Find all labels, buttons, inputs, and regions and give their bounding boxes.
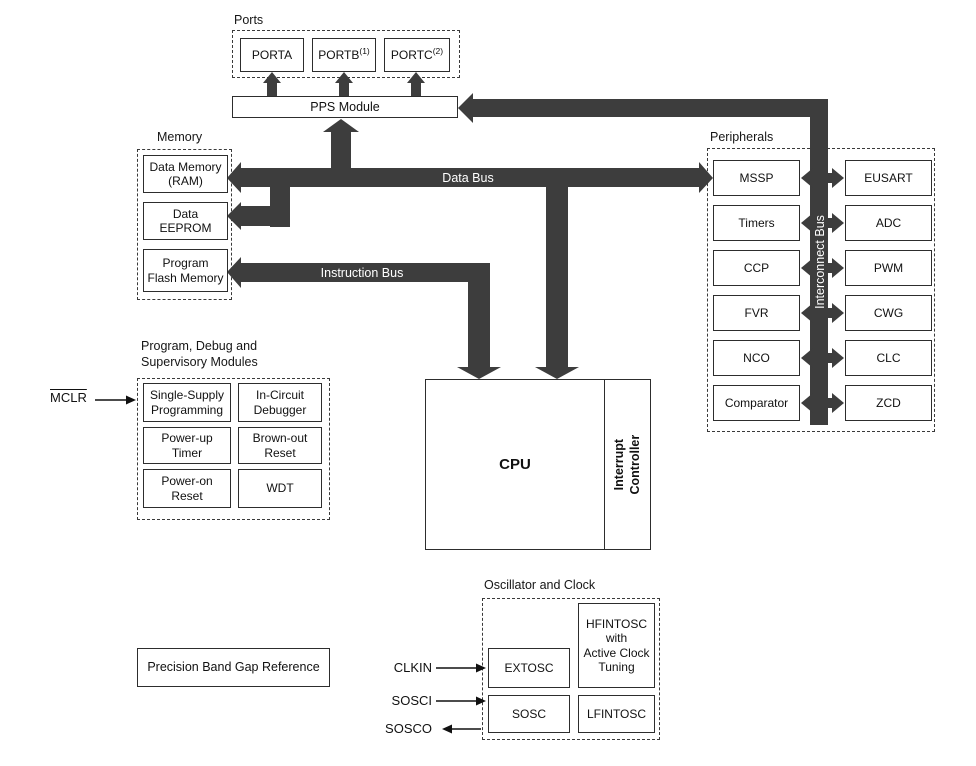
block-power-on-reset: Power-on Reset bbox=[143, 469, 231, 508]
clkin-pin-label: CLKIN bbox=[378, 660, 432, 675]
pps-to-porta-arrow bbox=[263, 72, 281, 97]
data-bus-to-eeprom-branch bbox=[227, 186, 290, 230]
block-power-up-timer: Power-up Timer bbox=[143, 427, 231, 464]
portc-label: PORTC bbox=[391, 48, 433, 62]
porta-label: PORTA bbox=[252, 48, 292, 62]
data-bus-label: Data Bus bbox=[442, 171, 493, 185]
ports-group-label: Ports bbox=[234, 13, 263, 29]
block-porta: PORTA bbox=[240, 38, 304, 72]
interconnect-bus-label: Interconnect Bus bbox=[813, 215, 827, 309]
data-bus-to-pps-branch bbox=[323, 119, 359, 169]
block-sosc: SOSC bbox=[488, 695, 570, 733]
memory-group-label: Memory bbox=[157, 130, 202, 146]
block-cwg: CWG bbox=[845, 295, 932, 331]
block-ccp: CCP bbox=[713, 250, 800, 286]
sosci-arrow bbox=[436, 697, 486, 706]
block-single-supply-programming: Single-Supply Programming bbox=[143, 383, 231, 422]
debug-group-label: Program, Debug and Supervisory Modules bbox=[141, 339, 258, 370]
block-interrupt-controller: Interrupt Controller bbox=[604, 380, 650, 549]
block-wdt: WDT bbox=[238, 469, 322, 508]
block-extosc: EXTOSC bbox=[488, 648, 570, 688]
interrupt-controller-label: Interrupt Controller bbox=[612, 435, 643, 495]
block-brown-out-reset: Brown-out Reset bbox=[238, 427, 322, 464]
block-timers: Timers bbox=[713, 205, 800, 241]
instruction-bus-label: Instruction Bus bbox=[321, 266, 404, 280]
portb-note: (1) bbox=[359, 46, 369, 56]
block-pps-module: PPS Module bbox=[232, 96, 458, 118]
block-data-eeprom: Data EEPROM bbox=[143, 202, 228, 240]
portb-label: PORTB bbox=[318, 48, 359, 62]
block-program-flash-memory: Program Flash Memory bbox=[143, 249, 228, 292]
block-lfintosc: LFINTOSC bbox=[578, 695, 655, 733]
sosci-pin-label: SOSCI bbox=[378, 693, 432, 708]
block-hfintosc: HFINTOSC with Active Clock Tuning bbox=[578, 603, 655, 688]
data-bus-to-cpu-branch bbox=[535, 187, 579, 379]
sosco-arrow bbox=[442, 725, 481, 734]
pps-to-portc-arrow bbox=[407, 72, 425, 97]
oscillator-group-label: Oscillator and Clock bbox=[484, 578, 595, 594]
cpu-label: CPU bbox=[499, 456, 531, 474]
block-cpu: CPU Interrupt Controller bbox=[425, 379, 651, 550]
sosco-pin-label: SOSCO bbox=[368, 721, 432, 736]
block-nco: NCO bbox=[713, 340, 800, 376]
peripherals-group-label: Peripherals bbox=[710, 130, 773, 146]
block-mssp: MSSP bbox=[713, 160, 800, 196]
block-adc: ADC bbox=[845, 205, 932, 241]
block-diagram: Ports Memory Peripherals Program, Debug … bbox=[0, 0, 976, 766]
block-data-memory-ram: Data Memory (RAM) bbox=[143, 155, 228, 193]
block-in-circuit-debugger: In-Circuit Debugger bbox=[238, 383, 322, 422]
block-portc: PORTC(2) bbox=[384, 38, 450, 72]
block-precision-band-gap-reference: Precision Band Gap Reference bbox=[137, 648, 330, 687]
block-comparator: Comparator bbox=[713, 385, 800, 421]
block-zcd: ZCD bbox=[845, 385, 932, 421]
block-portb: PORTB(1) bbox=[312, 38, 376, 72]
block-clc: CLC bbox=[845, 340, 932, 376]
block-fvr: FVR bbox=[713, 295, 800, 331]
block-pwm: PWM bbox=[845, 250, 932, 286]
mclr-pin-label: MCLR bbox=[50, 390, 96, 405]
mclr-arrow bbox=[95, 396, 136, 405]
block-eusart: EUSART bbox=[845, 160, 932, 196]
clkin-arrow bbox=[436, 664, 486, 673]
portc-note: (2) bbox=[433, 46, 443, 56]
pps-to-portb-arrow bbox=[335, 72, 353, 97]
